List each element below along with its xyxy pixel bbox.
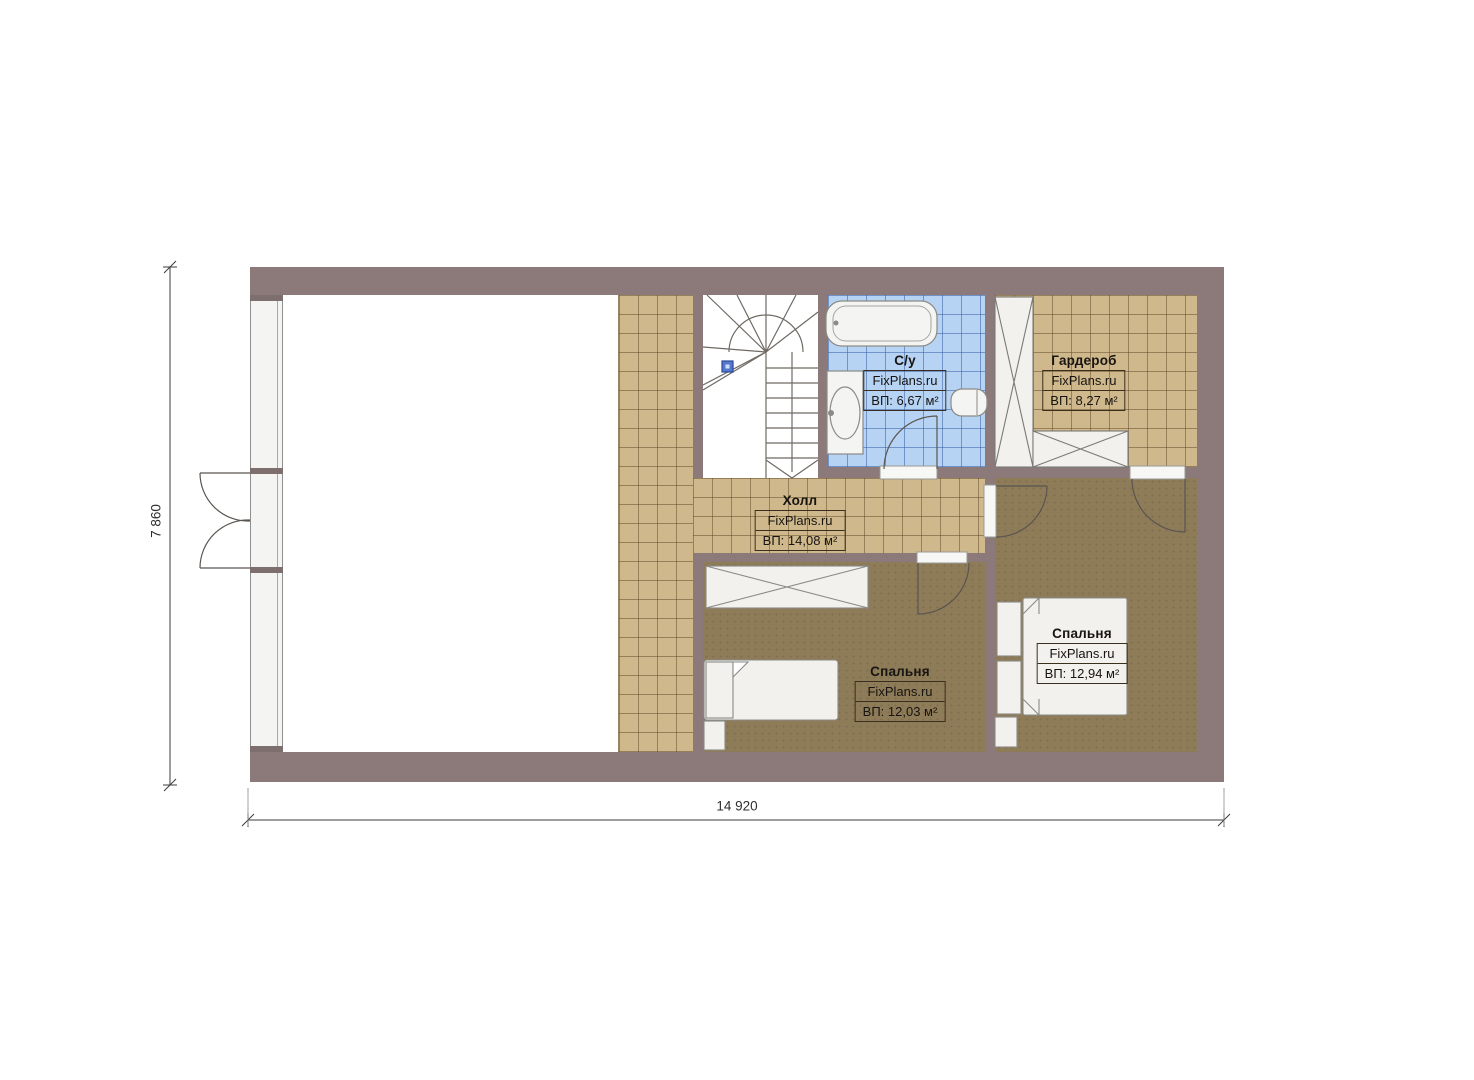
room-label-table: FixPlans.ru ВП: 14,08 м² — [755, 510, 846, 551]
sink-faucet-icon — [828, 410, 834, 416]
room-area: ВП: 12,94 м² — [1038, 663, 1127, 683]
watermark: FixPlans.ru — [864, 371, 945, 390]
watermark: FixPlans.ru — [856, 682, 945, 701]
bathtub-faucet-icon — [834, 321, 839, 326]
bedroom-small-nightstand — [704, 721, 725, 750]
room-area: ВП: 6,67 м² — [864, 390, 945, 410]
room-label-bedroom-large: Спальня FixPlans.ru ВП: 12,94 м² — [1037, 626, 1128, 684]
room-name: Спальня — [1037, 626, 1128, 641]
door-thresholds — [880, 466, 1185, 563]
stair-section-marker-center — [726, 365, 730, 369]
bedroom-large-dresser — [995, 717, 1017, 747]
entry-double-door-leaf-bottom — [200, 520, 250, 568]
room-label-table: FixPlans.ru ВП: 12,94 м² — [1037, 643, 1128, 684]
room-label-table: FixPlans.ru ВП: 12,03 м² — [855, 681, 946, 722]
bedroom-small-door-threshold — [917, 552, 967, 563]
wardrobe-door-threshold — [1130, 466, 1185, 479]
bedroom-small-furniture — [704, 566, 868, 750]
room-name: С/у — [863, 353, 946, 368]
stair-break-line — [703, 352, 766, 385]
bedroom-large-door-threshold — [984, 485, 996, 537]
entry-double-door-leaf-top — [200, 473, 250, 521]
room-area: ВП: 14,08 м² — [756, 530, 845, 550]
wardrobe-cabinet-tall — [995, 297, 1033, 467]
bedroom-small-door — [918, 563, 969, 614]
bathroom-door-threshold — [880, 466, 937, 479]
room-label-bathroom: С/у FixPlans.ru ВП: 6,67 м² — [863, 353, 946, 411]
room-area: ВП: 8,27 м² — [1043, 390, 1124, 410]
dimension-lines — [163, 261, 1230, 827]
room-label-table: FixPlans.ru ВП: 6,67 м² — [863, 370, 946, 411]
staircase — [703, 295, 818, 478]
bedroom-small-bed — [704, 660, 838, 720]
room-name: Гардероб — [1042, 353, 1125, 368]
room-name: Спальня — [855, 664, 946, 679]
plan-graphics — [0, 0, 1474, 1080]
watermark: FixPlans.ru — [1043, 371, 1124, 390]
room-label-table: FixPlans.ru ВП: 8,27 м² — [1042, 370, 1125, 411]
floor-plan: С/у FixPlans.ru ВП: 6,67 м² Гардероб Fix… — [0, 0, 1474, 1080]
bathtub — [826, 301, 937, 346]
dimension-height-label: 7 860 — [149, 504, 164, 538]
bedroom-large-door — [996, 486, 1047, 537]
wardrobe-cabinet-low — [1033, 431, 1128, 467]
toilet — [951, 389, 987, 416]
bathroom-door — [884, 416, 937, 469]
dimension-width-label: 14 920 — [716, 799, 757, 814]
room-name: Холл — [755, 493, 846, 508]
nightstand-bottom — [997, 661, 1021, 714]
watermark: FixPlans.ru — [756, 511, 845, 530]
room-area: ВП: 12,03 м² — [856, 701, 945, 721]
wardrobe-door — [1132, 479, 1185, 532]
watermark: FixPlans.ru — [1038, 644, 1127, 663]
bedroom-small-wardrobe — [706, 566, 868, 608]
room-label-wardrobe: Гардероб FixPlans.ru ВП: 8,27 м² — [1042, 353, 1125, 411]
room-label-bedroom-small: Спальня FixPlans.ru ВП: 12,03 м² — [855, 664, 946, 722]
room-label-hall: Холл FixPlans.ru ВП: 14,08 м² — [755, 493, 846, 551]
nightstand-top — [997, 602, 1021, 656]
